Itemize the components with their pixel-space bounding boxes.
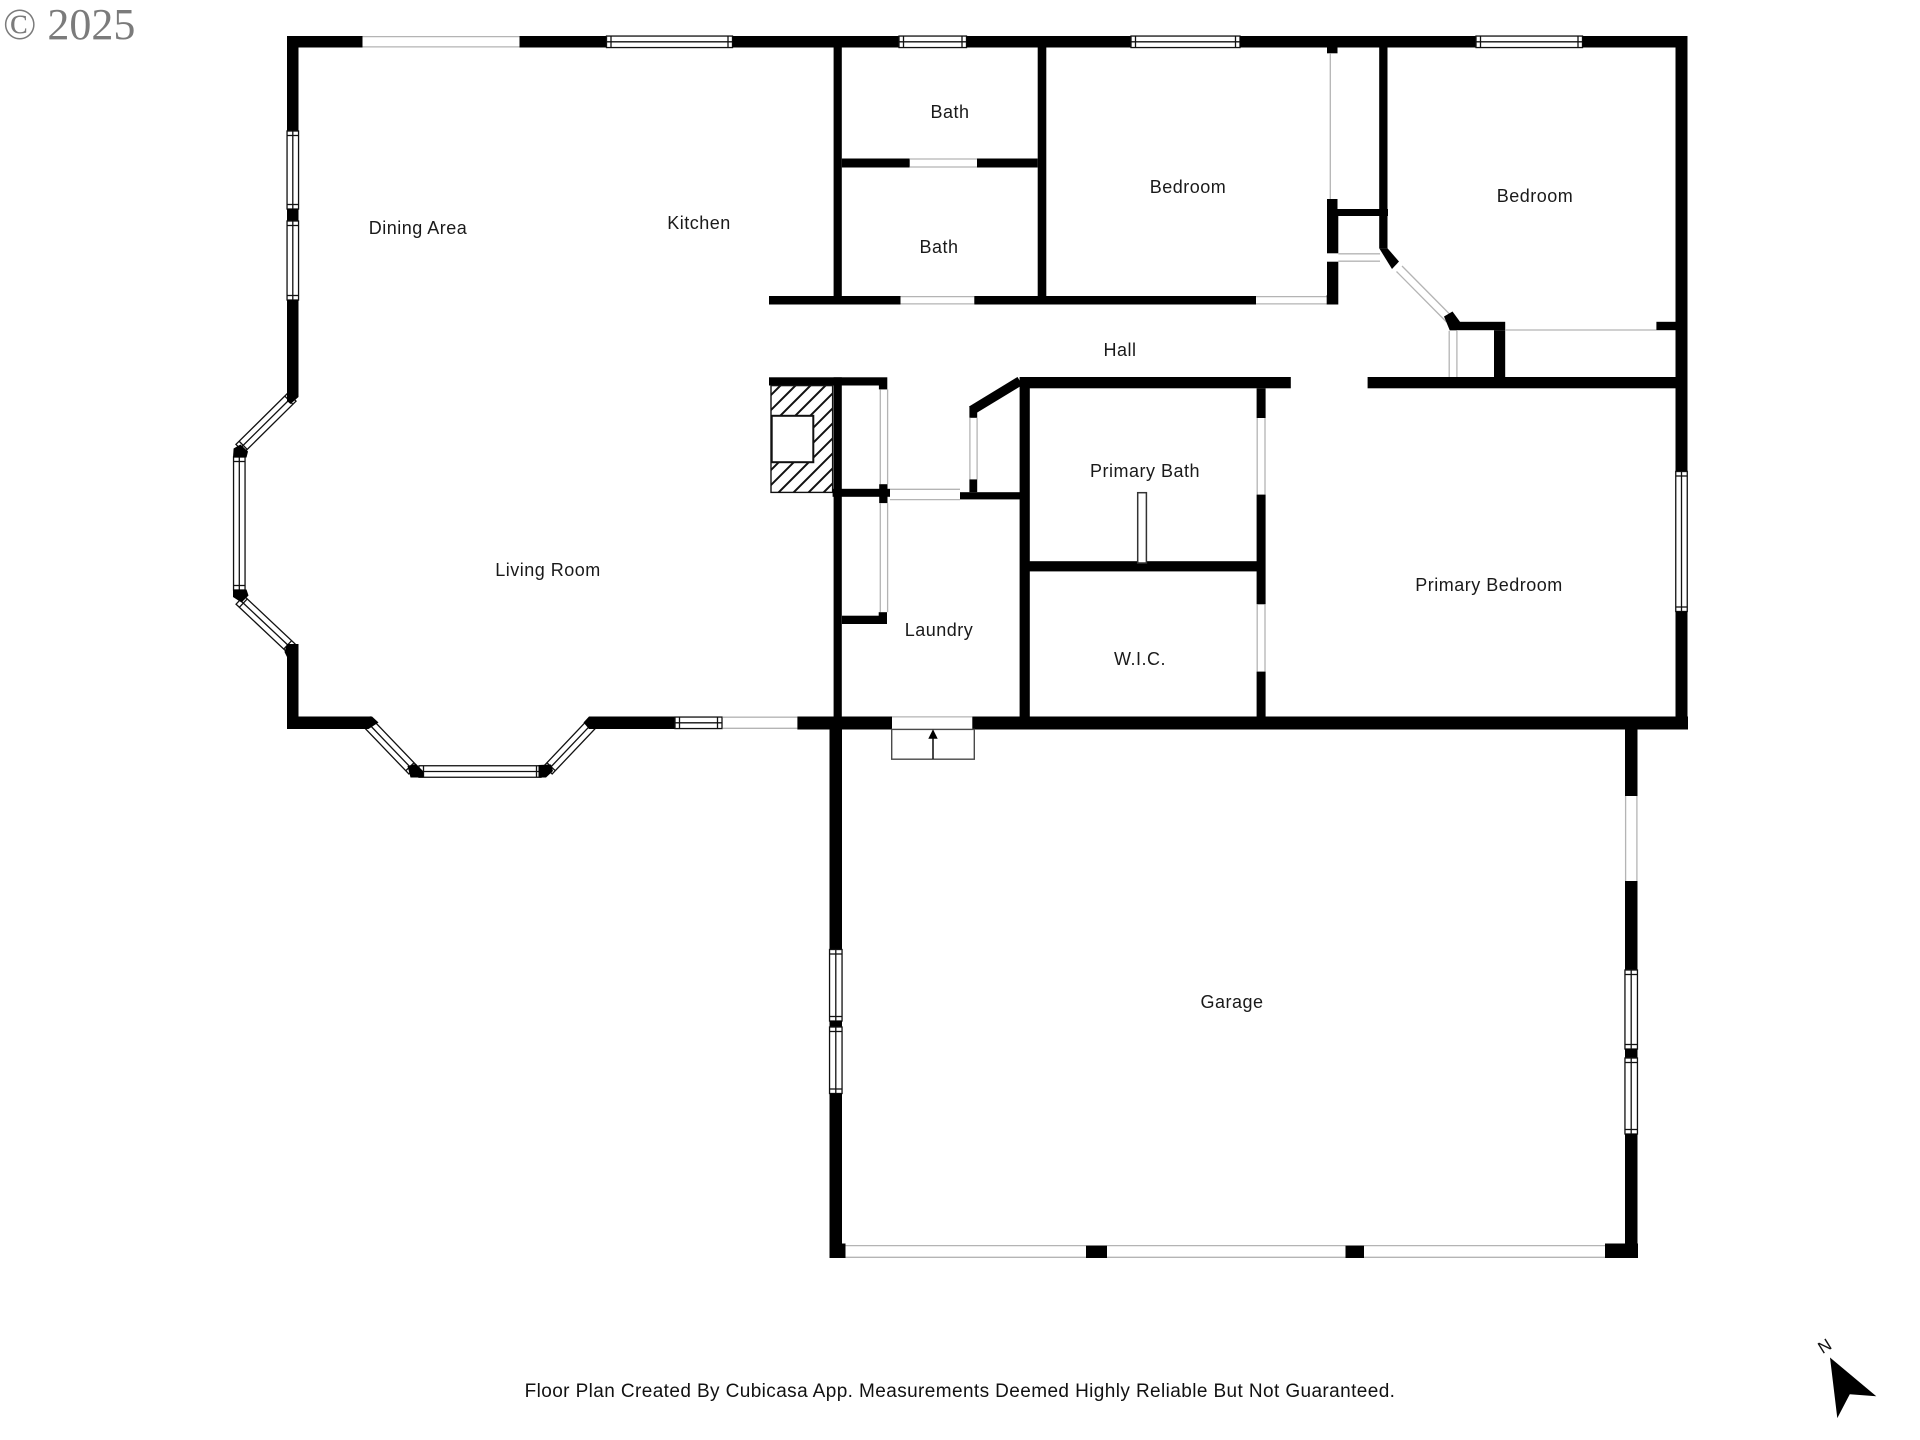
svg-text:Floor Plan Created By Cubicasa: Floor Plan Created By Cubicasa App. Meas… [525, 1381, 1396, 1402]
svg-text:Bath: Bath [930, 102, 969, 122]
svg-text:Garage: Garage [1200, 992, 1263, 1012]
svg-text:Bedroom: Bedroom [1150, 177, 1227, 197]
svg-text:W.I.C.: W.I.C. [1114, 649, 1166, 669]
svg-text:Living Room: Living Room [495, 560, 601, 580]
svg-text:Dining Area: Dining Area [369, 218, 468, 238]
svg-text:Kitchen: Kitchen [667, 213, 731, 233]
svg-text:Primary Bedroom: Primary Bedroom [1415, 575, 1563, 595]
svg-text:Bath: Bath [919, 237, 958, 257]
svg-text:Hall: Hall [1103, 340, 1136, 360]
svg-text:Laundry: Laundry [905, 620, 974, 640]
svg-text:Primary Bath: Primary Bath [1090, 461, 1200, 481]
svg-text:Bedroom: Bedroom [1497, 186, 1574, 206]
svg-text:© 2025: © 2025 [3, 0, 135, 49]
